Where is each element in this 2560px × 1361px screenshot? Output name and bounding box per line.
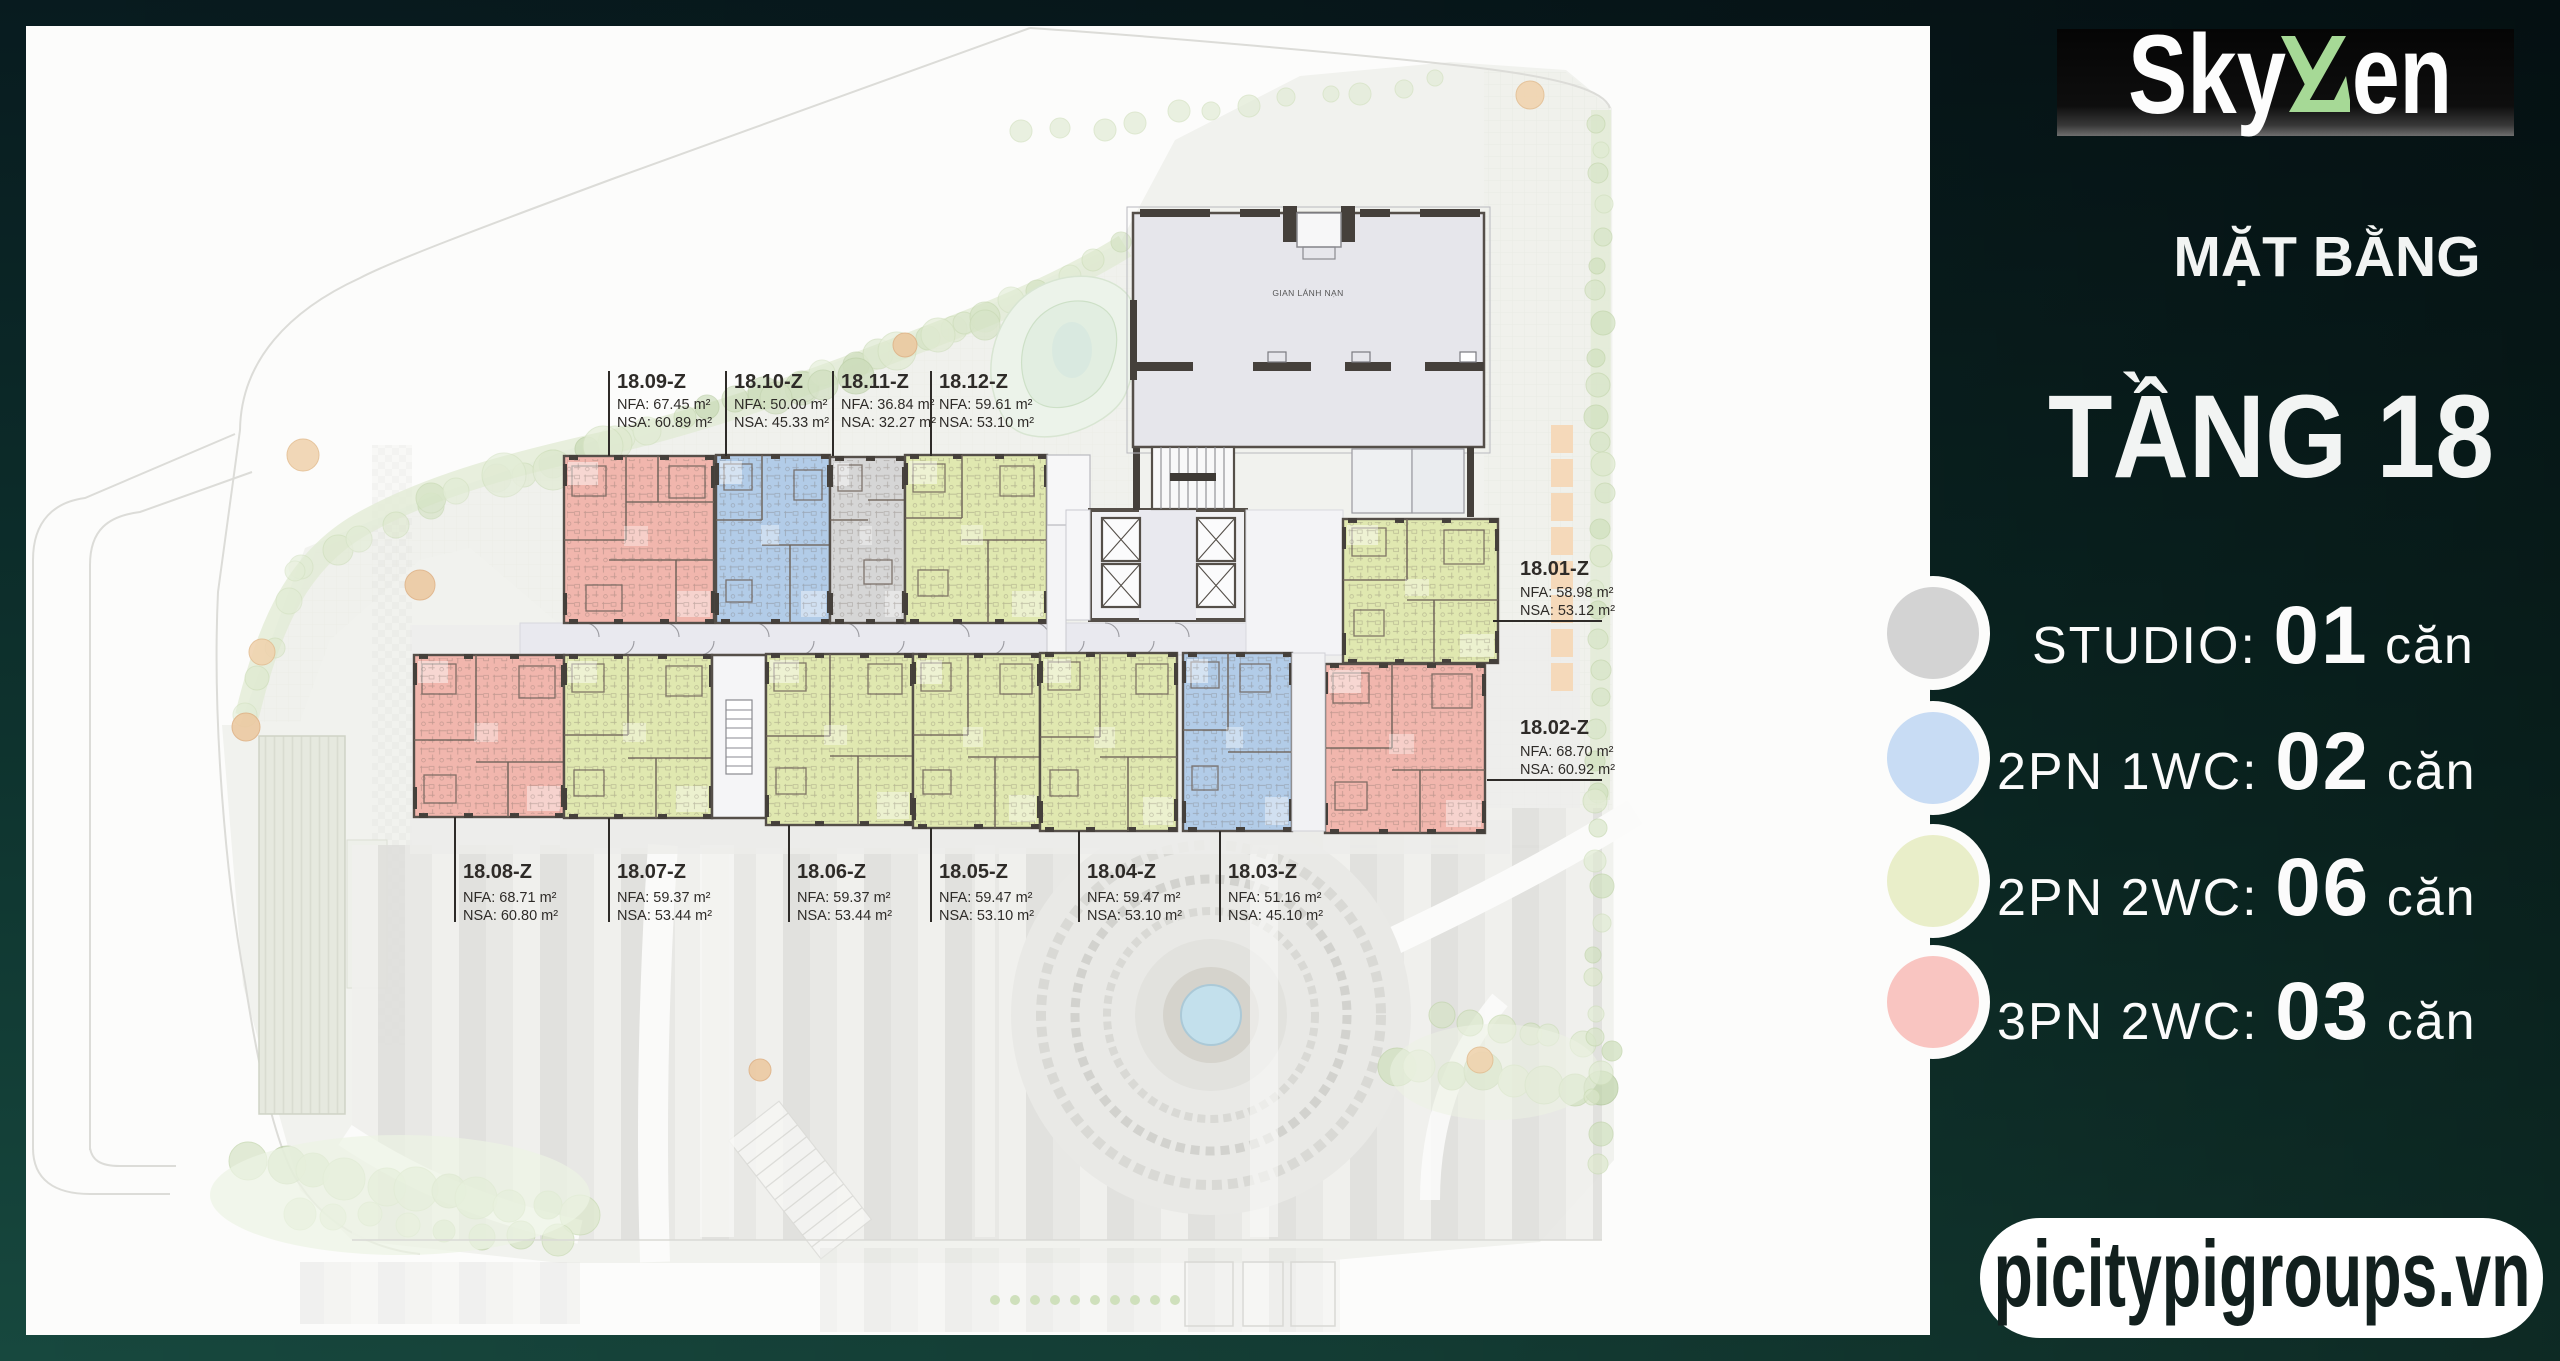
svg-text:NFA: 68.70 m²: NFA: 68.70 m² (1520, 744, 1614, 760)
svg-text:NSA: 60.80 m²: NSA: 60.80 m² (463, 908, 558, 924)
svg-text:NFA: 59.61 m²: NFA: 59.61 m² (939, 397, 1033, 413)
svg-text:NFA: 50.00 m²: NFA: 50.00 m² (734, 397, 828, 413)
svg-text:18.10-Z: 18.10-Z (734, 371, 803, 393)
svg-text:18.06-Z: 18.06-Z (797, 861, 866, 883)
svg-text:NSA: 53.10 m²: NSA: 53.10 m² (1087, 908, 1182, 924)
svg-text:18.11-Z: 18.11-Z (841, 371, 909, 393)
svg-text:NSA: 53.44 m²: NSA: 53.44 m² (797, 908, 892, 924)
svg-text:18.07-Z: 18.07-Z (617, 861, 686, 883)
svg-text:NSA: 53.10 m²: NSA: 53.10 m² (939, 415, 1034, 431)
svg-text:18.01-Z: 18.01-Z (1520, 558, 1589, 580)
svg-text:en: en (2352, 12, 2452, 137)
svg-text:NFA: 67.45 m²: NFA: 67.45 m² (617, 397, 711, 413)
svg-text:NSA: 53.12 m²: NSA: 53.12 m² (1520, 603, 1615, 619)
svg-text:18.04-Z: 18.04-Z (1087, 861, 1156, 883)
svg-text:NFA: 59.37 m²: NFA: 59.37 m² (617, 890, 711, 906)
svg-text:18.09-Z: 18.09-Z (617, 371, 686, 393)
svg-text:NSA: 32.27 m²: NSA: 32.27 m² (841, 415, 936, 431)
svg-text:TẦNG 18: TẦNG 18 (2048, 370, 2494, 503)
svg-text:NFA: 59.47 m²: NFA: 59.47 m² (1087, 890, 1181, 906)
svg-text:NSA: 60.92 m²: NSA: 60.92 m² (1520, 762, 1615, 778)
svg-text:GIAN LÁNH NẠN: GIAN LÁNH NẠN (1272, 288, 1343, 298)
svg-text:NSA: 45.10 m²: NSA: 45.10 m² (1228, 908, 1323, 924)
svg-text:18.03-Z: 18.03-Z (1228, 861, 1297, 883)
svg-text:NFA: 68.71 m²: NFA: 68.71 m² (463, 890, 557, 906)
svg-text:18.08-Z: 18.08-Z (463, 861, 532, 883)
svg-text:NFA: 59.47 m²: NFA: 59.47 m² (939, 890, 1033, 906)
svg-text:18.02-Z: 18.02-Z (1520, 717, 1589, 739)
svg-text:NSA: 60.89 m²: NSA: 60.89 m² (617, 415, 712, 431)
svg-text:MẶT BẰNG: MẶT BẰNG (2173, 224, 2480, 289)
svg-text:Sky: Sky (2128, 12, 2286, 137)
svg-text:picitypigroups.vn: picitypigroups.vn (1994, 1221, 2531, 1326)
svg-text:NFA: 58.98 m²: NFA: 58.98 m² (1520, 585, 1614, 601)
svg-text:NSA: 53.10 m²: NSA: 53.10 m² (939, 908, 1034, 924)
svg-text:NFA: 51.16 m²: NFA: 51.16 m² (1228, 890, 1322, 906)
svg-text:18.12-Z: 18.12-Z (939, 371, 1008, 393)
svg-text:18.05-Z: 18.05-Z (939, 861, 1008, 883)
svg-text:NSA: 45.33 m²: NSA: 45.33 m² (734, 415, 829, 431)
svg-text:NSA: 53.44 m²: NSA: 53.44 m² (617, 908, 712, 924)
svg-text:NFA: 59.37 m²: NFA: 59.37 m² (797, 890, 891, 906)
svg-text:NFA: 36.84 m²: NFA: 36.84 m² (841, 397, 935, 413)
